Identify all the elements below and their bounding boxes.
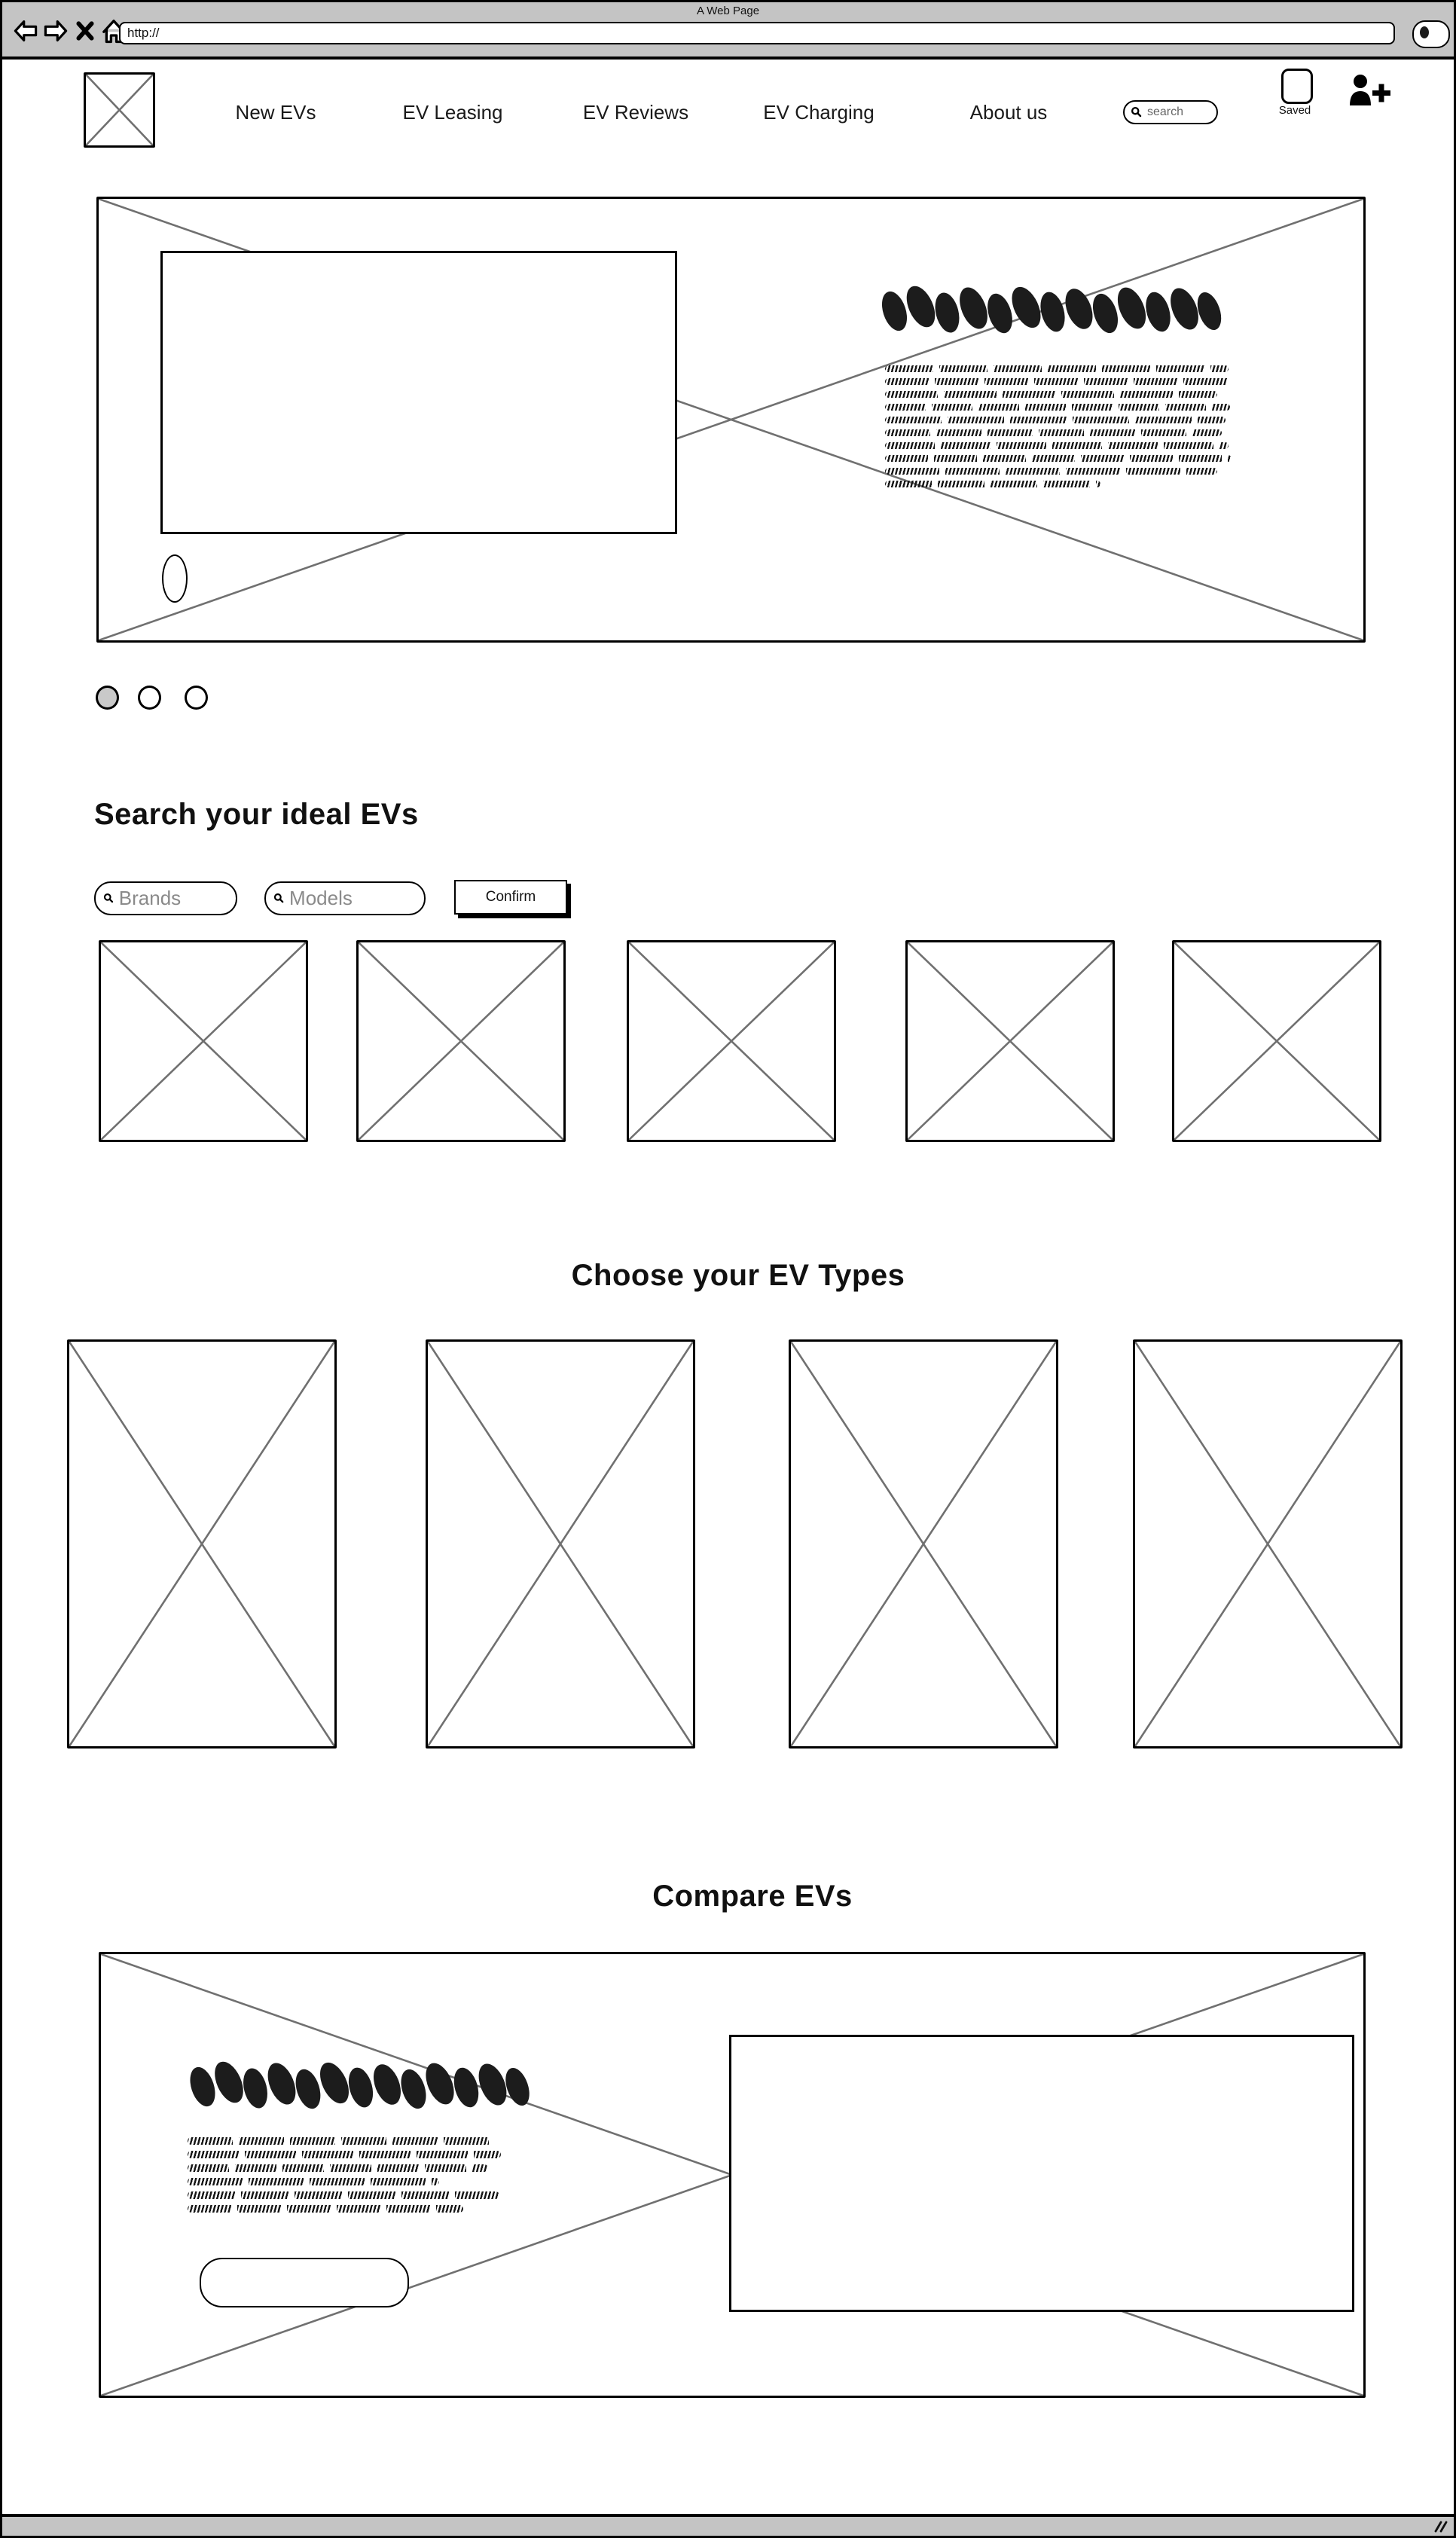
close-icon[interactable] [75,20,96,45]
magnifier-icon [103,892,114,905]
compare-rounded-button[interactable] [200,2258,409,2307]
ev-type-placeholder-4[interactable] [1133,1339,1403,1749]
nav-item-ev-charging[interactable]: EV Charging [763,101,874,124]
confirm-button[interactable]: Confirm [454,880,567,915]
ev-type-placeholder-1[interactable] [67,1339,337,1749]
ev-result-placeholder-3[interactable] [627,940,836,1142]
hero-inner-image-frame[interactable] [160,251,677,534]
site-logo[interactable] [84,72,155,148]
ev-result-placeholder-5[interactable] [1172,940,1381,1142]
ev-type-placeholder-3[interactable] [789,1339,1058,1749]
ev-result-placeholder-2[interactable] [356,940,566,1142]
window-title: A Web Page [2,5,1454,17]
models-input[interactable] [288,886,424,911]
placeholder-x-icon [629,942,834,1140]
ev-type-placeholder-2[interactable] [426,1339,695,1749]
ev-result-placeholder-4[interactable] [905,940,1115,1142]
models-field[interactable] [264,881,426,915]
magnifier-icon [1131,106,1143,118]
brands-input[interactable] [118,886,236,911]
hero-scribble-paragraph [885,365,1232,493]
nav-search-input[interactable] [1146,105,1212,120]
compare-section-heading: Compare EVs [652,1880,853,1913]
placeholder-x-icon [1174,942,1379,1140]
search-section-heading: Search your ideal EVs [94,798,419,832]
ev-result-placeholder-1[interactable] [99,940,308,1142]
nav-item-ev-leasing[interactable]: EV Leasing [403,101,503,124]
browser-chrome: A Web Page [2,2,1454,60]
placeholder-x-icon [69,1342,334,1746]
forward-arrow-icon[interactable] [43,19,69,47]
compare-scribble-heading [188,2056,542,2112]
browser-window: A Web Page New EVs EV Leasing EV Reviews… [0,0,1456,2538]
add-user-icon[interactable] [1348,74,1393,111]
brands-field[interactable] [94,881,237,915]
compare-scribble-paragraph [188,2137,504,2219]
carousel-dot-2[interactable] [138,686,161,710]
placeholder-x-icon [791,1342,1056,1746]
compare-inner-image-frame[interactable] [729,2035,1354,2312]
nav-item-ev-reviews[interactable]: EV Reviews [583,101,688,124]
carousel-dot-1[interactable] [96,686,119,710]
browser-search-button[interactable] [1412,20,1450,48]
placeholder-x-icon [359,942,563,1140]
resize-handle-icon[interactable] [1433,2520,1449,2537]
browser-status-bar [2,2514,1454,2538]
nav-search-box[interactable] [1123,100,1218,124]
hero-scribble-heading [878,281,1235,335]
back-arrow-icon[interactable] [13,19,38,47]
url-input[interactable] [119,22,1395,44]
types-section-heading: Choose your EV Types [572,1259,905,1293]
magnifier-icon [273,892,285,905]
carousel-dot-3[interactable] [185,686,208,710]
nav-item-about-us[interactable]: About us [970,101,1048,124]
nav-item-new-evs[interactable]: New EVs [236,101,316,124]
placeholder-x-icon [86,75,153,145]
placeholder-x-icon [101,942,306,1140]
placeholder-x-icon [908,942,1113,1140]
placeholder-x-icon [428,1342,693,1746]
saved-icon[interactable] [1281,69,1313,104]
saved-label: Saved [1279,104,1311,117]
hero-oval-marker [162,554,188,603]
placeholder-x-icon [1135,1342,1400,1746]
